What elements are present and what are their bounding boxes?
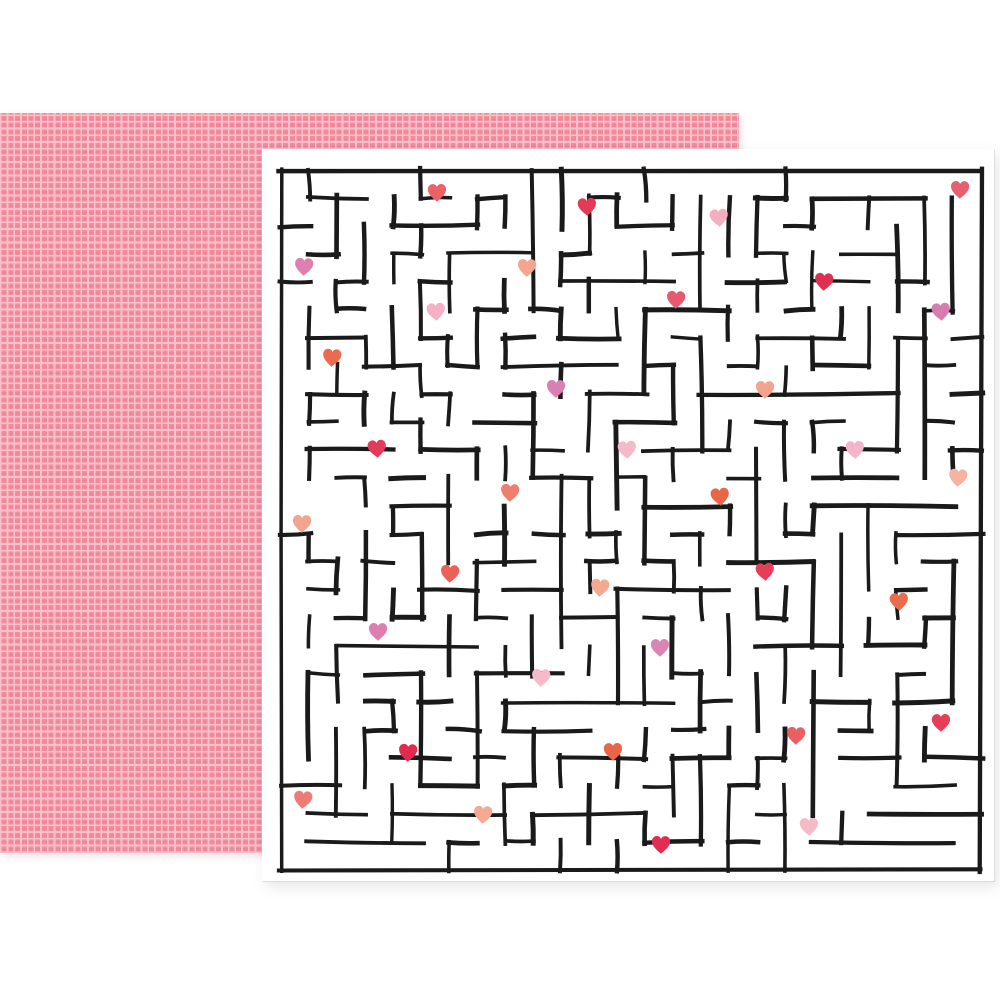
maze-wall-segment bbox=[756, 197, 758, 256]
maze-wall-segment bbox=[420, 168, 421, 199]
maze-wall-segment bbox=[757, 338, 844, 339]
maze-wall-segment bbox=[840, 758, 899, 759]
maze-wall-segment bbox=[897, 338, 898, 451]
maze-wall-segment bbox=[476, 533, 506, 535]
maze-wall-segment bbox=[505, 335, 506, 368]
maze-wall-segment bbox=[392, 225, 478, 226]
heart-icon bbox=[426, 302, 445, 321]
maze-wall-segment bbox=[281, 169, 282, 871]
maze-wall-segment bbox=[392, 253, 422, 254]
maze-pattern-with-hearts bbox=[262, 149, 994, 881]
maze-wall-segment bbox=[644, 618, 673, 619]
maze-wall-segment bbox=[924, 618, 926, 647]
maze-wall-segment bbox=[420, 282, 421, 339]
maze-wall-segment bbox=[420, 672, 421, 785]
maze-wall-segment bbox=[786, 309, 813, 311]
maze-wall-segment bbox=[504, 785, 534, 786]
maze-wall-segment bbox=[673, 449, 674, 480]
maze-wall-segment bbox=[420, 366, 422, 397]
maze-wall-segment bbox=[699, 393, 899, 395]
maze-wall-segment bbox=[701, 701, 731, 703]
maze-wall-segment bbox=[615, 422, 675, 423]
heart-icon bbox=[667, 291, 686, 309]
maze-wall-segment bbox=[672, 337, 700, 339]
maze-wall-segment bbox=[505, 395, 535, 396]
maze-wall-segment bbox=[643, 450, 730, 451]
maze-wall-segment bbox=[448, 729, 480, 731]
maze-wall-segment bbox=[280, 226, 311, 227]
heart-icon bbox=[651, 639, 669, 657]
maze-wall-segment bbox=[392, 534, 422, 535]
maze-wall-segment bbox=[560, 281, 674, 282]
maze-wall-segment bbox=[561, 253, 589, 255]
maze-wall-segment bbox=[309, 394, 310, 424]
maze-wall-segment bbox=[644, 478, 645, 563]
maze-wall-segment bbox=[756, 674, 758, 730]
maze-wall-segment bbox=[279, 869, 981, 870]
maze-wall-segment bbox=[391, 478, 424, 479]
maze-wall-segment bbox=[617, 841, 618, 871]
scrapbook-paper-product-photo bbox=[0, 0, 1000, 1000]
heart-icon bbox=[814, 273, 833, 292]
maze-wall-segment bbox=[337, 364, 338, 395]
maze-wall-segment bbox=[897, 281, 928, 282]
maze-wall-segment bbox=[533, 814, 534, 843]
maze-wall-segment bbox=[728, 197, 730, 255]
maze-wall-segment bbox=[644, 309, 646, 393]
maze-wall-segment bbox=[506, 841, 534, 842]
maze-wall-segment bbox=[561, 169, 562, 229]
maze-wall-segment bbox=[364, 729, 365, 788]
maze-wall-segment bbox=[952, 198, 953, 313]
maze-wall-segment bbox=[309, 448, 310, 479]
maze-wall-segment bbox=[700, 672, 701, 731]
heart-icon bbox=[709, 208, 729, 227]
heart-icon bbox=[500, 484, 519, 503]
heart-icon bbox=[652, 836, 670, 854]
maze-wall-segment bbox=[616, 309, 618, 339]
maze-wall-segment bbox=[645, 310, 730, 311]
maze-wall-segment bbox=[897, 226, 899, 311]
maze-wall-segment bbox=[392, 701, 394, 731]
maze-wall-segment bbox=[700, 756, 701, 844]
maze-wall-segment bbox=[728, 421, 730, 450]
heart-icon bbox=[931, 302, 951, 321]
maze-wall-segment bbox=[924, 729, 925, 761]
maze-wall-segment bbox=[812, 506, 956, 507]
maze-wall-segment bbox=[784, 729, 785, 760]
maze-wall-segment bbox=[784, 422, 785, 480]
maze-wall-segment bbox=[504, 731, 591, 732]
maze-wall-segment bbox=[728, 786, 729, 871]
heart-icon bbox=[531, 669, 550, 688]
maze-wall-segment bbox=[448, 252, 533, 253]
maze-wall-segment bbox=[308, 672, 309, 759]
maze-wall-segment bbox=[784, 588, 786, 621]
maze-wall-segment bbox=[924, 310, 925, 478]
maze-wall-segment bbox=[728, 842, 758, 843]
maze-wall-segment bbox=[476, 617, 506, 618]
maze-wall-segment bbox=[926, 365, 954, 366]
maze-wall-segment bbox=[700, 197, 701, 311]
maze-wall-segment bbox=[869, 701, 870, 731]
maze-wall-segment bbox=[757, 589, 758, 618]
maze-wall-segment bbox=[644, 169, 647, 201]
maze-wall-segment bbox=[533, 394, 534, 478]
maze-wall-segment bbox=[756, 449, 757, 563]
maze-wall-segment bbox=[616, 532, 617, 562]
maze-wall-segment bbox=[895, 701, 953, 703]
maze-wall-segment bbox=[505, 647, 506, 676]
heart-icon bbox=[617, 441, 636, 460]
maze-wall-segment bbox=[336, 477, 365, 478]
heart-icon bbox=[755, 562, 774, 581]
maze-wall-segment bbox=[897, 674, 924, 675]
maze-wall-segment bbox=[420, 225, 421, 256]
maze-wall-segment bbox=[813, 505, 815, 534]
maze-wall-segment bbox=[504, 701, 505, 730]
maze-wall-segment bbox=[644, 647, 645, 704]
maze-wall-segment bbox=[447, 365, 477, 367]
maze-wall-segment bbox=[755, 645, 841, 646]
maze-wall-segment bbox=[365, 701, 393, 702]
maze-wall-segment bbox=[785, 367, 787, 395]
maze-wall-segment bbox=[505, 447, 506, 479]
maze-wall-segment bbox=[700, 338, 702, 452]
maze-wall-segment bbox=[895, 785, 955, 787]
maze-wall-segment bbox=[812, 422, 814, 451]
maze-wall-segment bbox=[505, 197, 506, 227]
maze-wall-segment bbox=[419, 589, 478, 590]
maze-wall-segment bbox=[897, 534, 984, 535]
maze-wall-segment bbox=[673, 756, 674, 816]
maze-wall-segment bbox=[841, 534, 842, 675]
maze-wall-segment bbox=[812, 702, 869, 703]
maze-wall-segment bbox=[365, 674, 423, 676]
maze-wall-segment bbox=[868, 619, 869, 645]
maze-wall-segment bbox=[924, 198, 925, 284]
heart-icon bbox=[369, 623, 387, 641]
heart-icon bbox=[578, 198, 597, 216]
maze-wall-segment bbox=[336, 559, 338, 593]
maze-wall-segment bbox=[950, 450, 982, 451]
maze-wall-segment bbox=[365, 730, 395, 731]
heart-icon bbox=[294, 258, 313, 277]
maze-wall-segment bbox=[953, 337, 983, 339]
maze-wall-segment bbox=[306, 841, 424, 843]
maze-wall-segment bbox=[558, 757, 646, 759]
maze-wall-segment bbox=[421, 786, 478, 787]
maze-wall-segment bbox=[364, 478, 366, 506]
heart-icon bbox=[293, 790, 313, 809]
heart-icon bbox=[932, 714, 950, 732]
maze-wall-segment bbox=[757, 758, 758, 788]
heart-icon bbox=[590, 578, 610, 597]
maze-wall-segment bbox=[281, 785, 340, 786]
maze-wall-segment bbox=[561, 476, 562, 647]
maze-wall-segment bbox=[560, 253, 561, 285]
heart-icon bbox=[787, 727, 806, 745]
heart-icon bbox=[800, 818, 819, 836]
maze-wall-segment bbox=[561, 617, 618, 618]
maze-wall-segment bbox=[503, 703, 674, 704]
maze-wall-segment bbox=[504, 784, 505, 844]
maze-wall-segment bbox=[644, 787, 673, 788]
maze-wall-segment bbox=[308, 170, 310, 200]
maze-wall-segment bbox=[308, 308, 309, 368]
maze-wall-segment bbox=[785, 534, 813, 535]
maze-wall-segment bbox=[868, 197, 870, 228]
maze-wall-segment bbox=[589, 197, 619, 198]
maze-wall-segment bbox=[392, 590, 393, 619]
maze-wall-segment bbox=[926, 757, 984, 759]
heart-icon bbox=[473, 806, 492, 825]
maze-wall-segment bbox=[308, 421, 337, 422]
maze-wall-segment bbox=[589, 646, 590, 674]
maze-wall-segment bbox=[504, 280, 505, 311]
maze-wall-segment bbox=[364, 224, 365, 283]
maze-wall-segment bbox=[644, 507, 731, 508]
maze-wall-segment bbox=[952, 393, 983, 394]
maze-wall-segment bbox=[449, 254, 450, 312]
maze-wall-segment bbox=[392, 506, 450, 507]
maze-wall-segment bbox=[392, 307, 394, 367]
maze-wall-segment bbox=[813, 365, 869, 366]
maze-wall-segment bbox=[307, 338, 365, 339]
maze-wall-segment bbox=[589, 786, 590, 843]
heart-icon bbox=[367, 439, 387, 458]
maze-wall-segment bbox=[644, 561, 674, 562]
maze-wall-segment bbox=[419, 701, 451, 702]
maze-wall-segment bbox=[532, 450, 563, 451]
maze-wall-segment bbox=[336, 646, 338, 702]
maze-wall-segment bbox=[841, 813, 842, 843]
maze-wall-segment bbox=[645, 813, 646, 844]
maze-wall-segment bbox=[447, 336, 448, 366]
maze-wall-segment bbox=[617, 225, 673, 227]
maze-wall-segment bbox=[476, 561, 477, 619]
maze-wall-segment bbox=[980, 169, 982, 872]
maze-wall-segment bbox=[449, 843, 478, 844]
maze-wall-segment bbox=[590, 562, 591, 592]
maze-wall-segment bbox=[477, 197, 504, 199]
maze-wall-segment bbox=[587, 394, 648, 395]
maze-wall-segment bbox=[925, 421, 953, 423]
maze-wall-segment bbox=[672, 196, 673, 228]
heart-icon bbox=[889, 593, 908, 612]
maze-wall-segment bbox=[729, 562, 814, 563]
maze-wall-segment bbox=[617, 757, 618, 787]
maze-wall-segment bbox=[952, 561, 954, 703]
maze-wall-segment bbox=[421, 449, 479, 450]
heart-icon bbox=[293, 515, 312, 533]
maze-wall-segment bbox=[560, 840, 561, 872]
maze-wall-segment bbox=[477, 197, 478, 229]
maze-wall-segment bbox=[560, 755, 561, 786]
maze-wall-segment bbox=[337, 646, 477, 647]
maze-wall-segment bbox=[841, 448, 842, 478]
maze-wall-segment bbox=[784, 253, 787, 281]
maze-wall-segment bbox=[784, 646, 785, 702]
maze-wall-segment bbox=[558, 338, 619, 339]
maze-wall-segment bbox=[811, 842, 954, 843]
maze-wall-segment bbox=[756, 422, 786, 423]
maze-wall-segment bbox=[758, 618, 786, 620]
front-sheet-maze-paper bbox=[262, 149, 994, 881]
maze-wall-segment bbox=[364, 393, 365, 424]
maze-wall-segment bbox=[477, 673, 478, 787]
maze-wall-segment bbox=[393, 197, 394, 227]
maze-wall-segment bbox=[813, 672, 814, 816]
maze-wall-segment bbox=[812, 199, 813, 228]
maze-wall-segment bbox=[477, 309, 478, 366]
maze-wall-segment bbox=[532, 170, 534, 311]
heart-icon bbox=[441, 565, 460, 583]
maze-wall-segment bbox=[758, 336, 759, 368]
maze-wall-segment bbox=[897, 674, 898, 786]
heart-icon bbox=[710, 487, 730, 506]
maze-wall-segment bbox=[560, 309, 561, 339]
maze-wall-segment bbox=[308, 254, 339, 255]
maze-wall-segment bbox=[895, 533, 896, 563]
maze-wall-segment bbox=[645, 365, 674, 366]
maze-wall-segment bbox=[280, 282, 311, 283]
maze-wall-segment bbox=[728, 615, 729, 674]
maze-wall-segment bbox=[337, 308, 364, 309]
maze-wall-segment bbox=[534, 729, 535, 785]
maze-wall-segment bbox=[674, 673, 702, 674]
maze-wall-segment bbox=[588, 392, 590, 451]
maze-wall-segment bbox=[335, 281, 336, 311]
maze-wall-segment bbox=[308, 616, 309, 647]
maze-wall-segment bbox=[896, 590, 925, 591]
maze-wall-segment bbox=[308, 673, 339, 675]
maze-wall-segment bbox=[786, 169, 787, 200]
maze-wall-segment bbox=[420, 281, 451, 282]
maze-wall-segment bbox=[812, 252, 813, 310]
maze-wall-segment bbox=[701, 588, 703, 619]
maze-wall-segment bbox=[840, 309, 841, 338]
maze-wall-segment bbox=[448, 393, 450, 424]
maze-wall-segment bbox=[784, 785, 785, 871]
maze-wall-segment bbox=[812, 338, 813, 369]
maze-wall-segment bbox=[475, 423, 535, 424]
maze-wall-segment bbox=[644, 729, 646, 760]
heart-icon bbox=[845, 441, 864, 460]
heart-icon bbox=[948, 468, 968, 487]
maze-wall-segment bbox=[673, 365, 674, 423]
maze-wall-segment bbox=[475, 309, 506, 310]
maze-wall-segment bbox=[811, 421, 844, 423]
maze-wall-segment bbox=[616, 422, 617, 508]
maze-wall-segment bbox=[868, 505, 869, 590]
maze-wall-segment bbox=[392, 785, 393, 843]
maze-wall-segment bbox=[785, 505, 786, 537]
maze-wall-segment bbox=[617, 589, 618, 704]
maze-wall-segment bbox=[392, 394, 394, 423]
maze-walls bbox=[279, 168, 984, 872]
maze-wall-segment bbox=[365, 532, 366, 619]
maze-wall-segment bbox=[812, 562, 814, 647]
